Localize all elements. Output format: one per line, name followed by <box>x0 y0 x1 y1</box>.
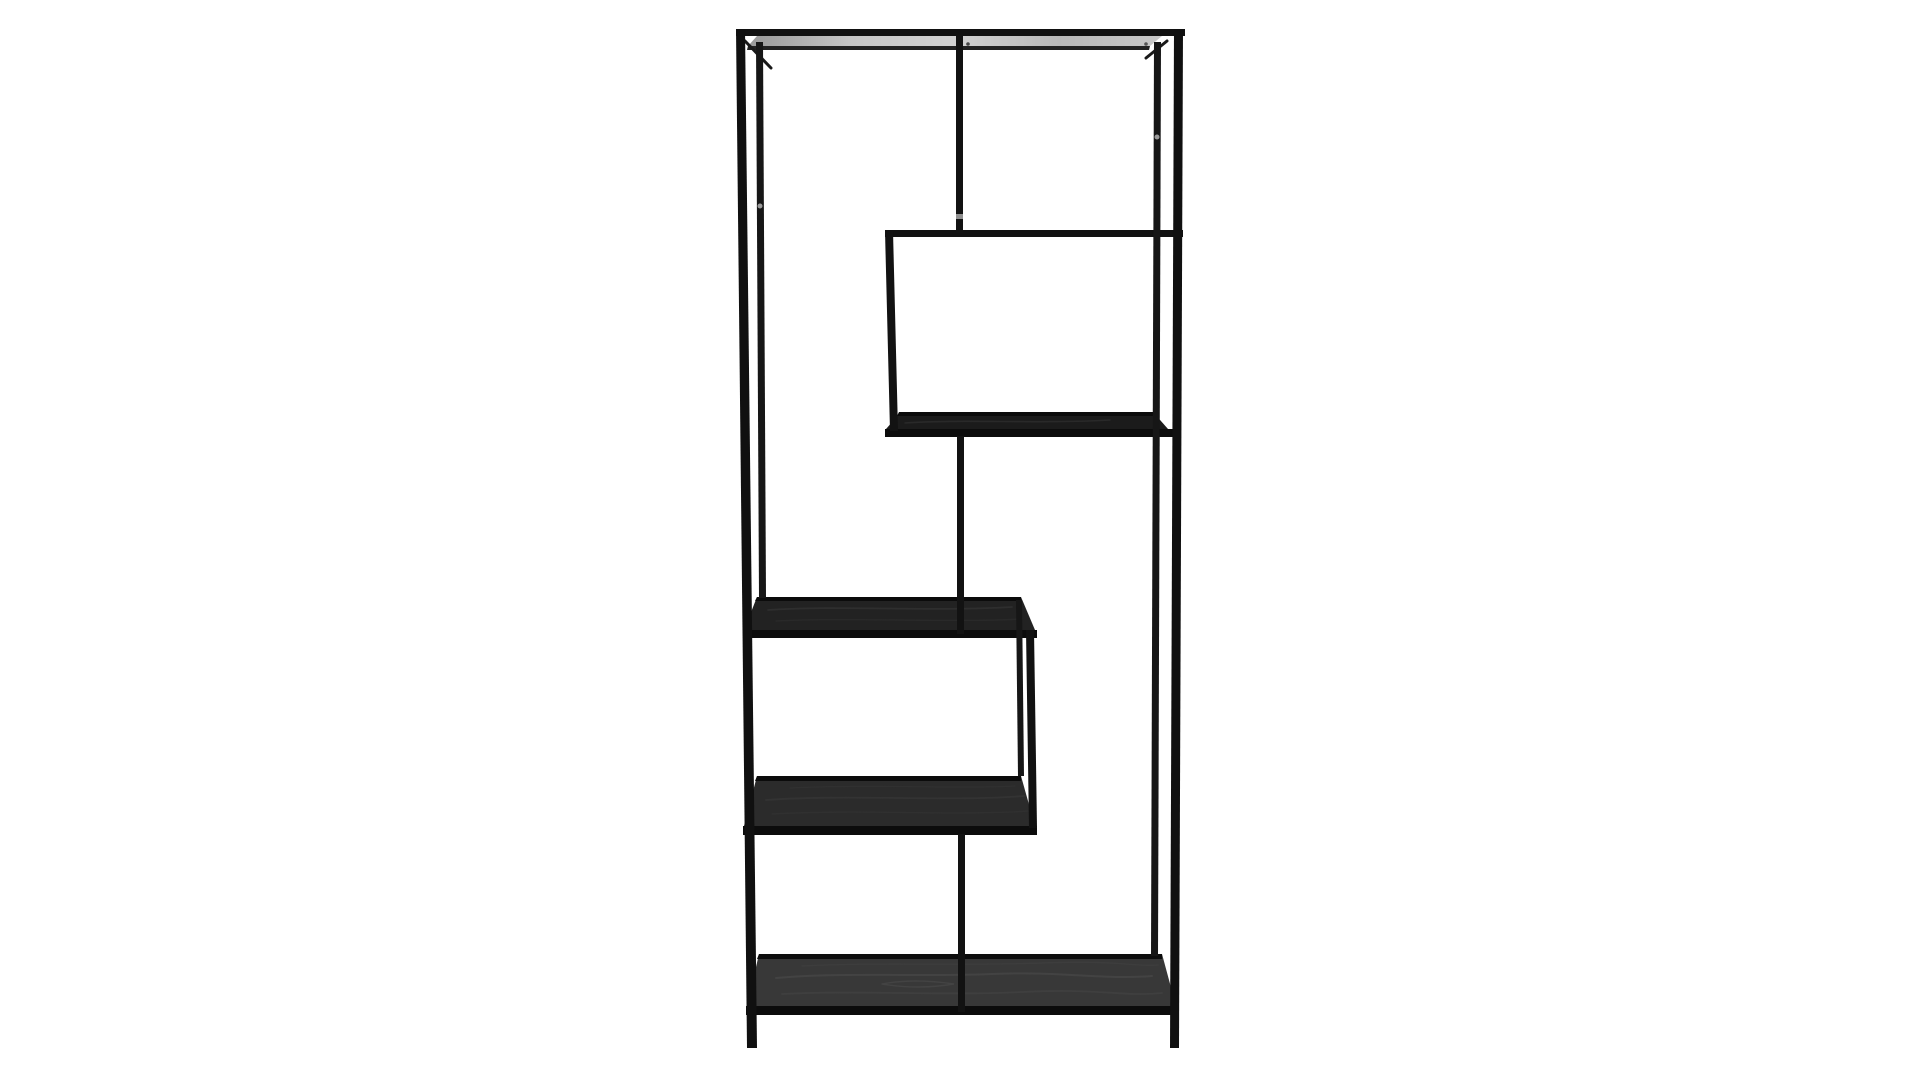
lower-shelf-panel <box>744 776 1035 826</box>
top-back-bar <box>747 46 1150 50</box>
bookcase-shapes <box>736 29 1185 1048</box>
middle-shelf-front-bar <box>743 630 1037 638</box>
screw-right-post <box>1155 135 1160 140</box>
top-divider <box>956 35 963 233</box>
mid-divider <box>957 436 964 634</box>
lower-shelf-front-bar <box>743 826 1037 835</box>
top-bar <box>736 29 1185 36</box>
box-bottom-back-bar <box>897 412 1153 416</box>
divider-joint-notch <box>956 214 963 219</box>
screw-under-top-1 <box>966 42 970 46</box>
box-bottom-front-bar <box>885 429 1175 437</box>
lower-box-right-front <box>1026 630 1037 828</box>
screw-left-post <box>758 204 763 209</box>
bookcase-svg <box>0 0 1920 1080</box>
box-left-member <box>885 231 898 431</box>
bottom-divider <box>958 834 965 1012</box>
lower-shelf-back-bar <box>755 776 1021 781</box>
front-left-post <box>736 29 757 1048</box>
top-surface-strip <box>748 36 1162 46</box>
box-top-bar <box>885 230 1183 237</box>
back-right-post <box>1151 42 1161 956</box>
middle-shelf-back-bar <box>755 597 1021 601</box>
product-photo <box>0 0 1920 1080</box>
middle-shelf-panel <box>744 597 1035 630</box>
screw-under-top-2 <box>1144 42 1148 46</box>
front-right-post <box>1170 29 1183 1048</box>
back-left-post <box>756 42 766 598</box>
